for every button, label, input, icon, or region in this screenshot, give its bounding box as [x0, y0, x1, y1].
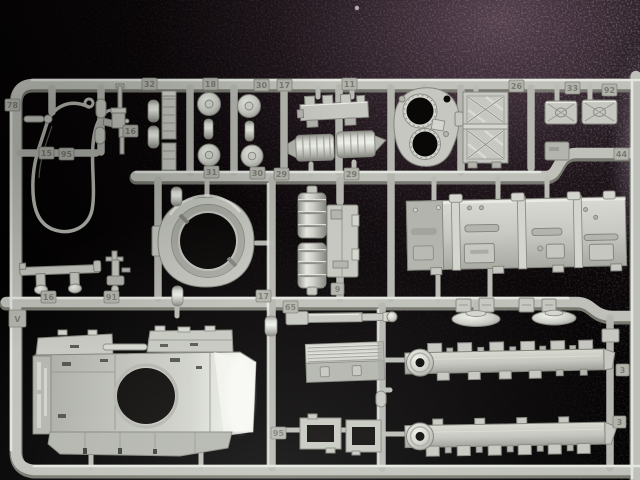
photo-frame: 78 15 95 32 18 30 17 11 26 33 92 31 30 2…: [0, 0, 640, 480]
sprue-photo: 78 15 95 32 18 30 17 11 26 33 92 31 30 2…: [0, 0, 640, 480]
lighting-overlays: [0, 0, 640, 480]
